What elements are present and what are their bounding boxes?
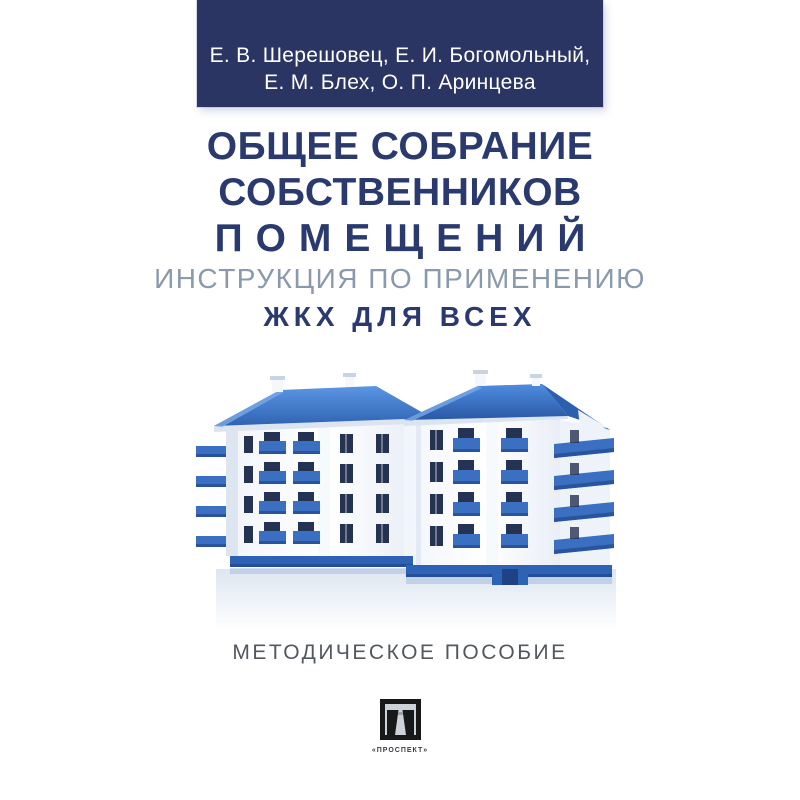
- authors-band: Е. В. Шерешовец, Е. И. Богомольный, Е. М…: [197, 0, 603, 107]
- publisher-block: «ПРОСПЕКТ»: [0, 699, 800, 754]
- tagline: ЖКХ ДЛЯ ВСЕХ: [0, 301, 800, 333]
- title-line-3: ПОМЕЩЕНИЙ: [0, 216, 800, 262]
- title-line-2: СОБСТВЕННИКОВ: [0, 170, 800, 216]
- publisher-name: «ПРОСПЕКТ»: [0, 747, 800, 754]
- prospekt-gate-icon: [380, 699, 421, 740]
- reflection: [216, 568, 616, 631]
- apartment-buildings-illustration: [180, 368, 628, 644]
- authors-line-1: Е. В. Шерешовец, Е. И. Богомольный,: [197, 42, 603, 69]
- title-line-1: ОБЩЕЕ СОБРАНИЕ: [0, 124, 800, 170]
- subtitle: ИНСТРУКЦИЯ ПО ПРИМЕНЕНИЮ: [0, 263, 800, 295]
- authors-line-2: Е. М. Блех, О. П. Аринцева: [197, 69, 603, 96]
- book-title: ОБЩЕЕ СОБРАНИЕ СОБСТВЕННИКОВ ПОМЕЩЕНИЙ: [0, 124, 800, 262]
- right-building: [404, 370, 614, 585]
- left-building: [196, 373, 432, 567]
- edition-type: МЕТОДИЧЕСКОЕ ПОСОБИЕ: [0, 641, 800, 665]
